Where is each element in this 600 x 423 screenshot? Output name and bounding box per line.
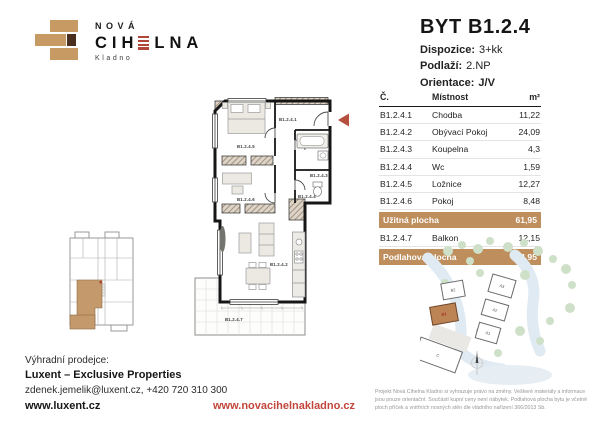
flyer-page: NOVÁ CIHLNA Kladno BYT B1.2.4 Dispozice:… (0, 0, 600, 423)
building-a2: A2 (481, 299, 508, 321)
disclaimer-text: Projekt Nová Cihelna Kladno si vyhrazuje… (375, 388, 593, 413)
table-row: B1.2.4.2Obývací Pokoj24,09 (379, 124, 541, 141)
building-b2: B2 (441, 280, 465, 300)
building-b1-highlighted: B1 (430, 303, 459, 325)
label-balkon: B1.2.4.7 (225, 317, 243, 322)
label-loznice: B1.2.4.5 (237, 144, 255, 149)
logo: NOVÁ CIHLNA Kladno (35, 20, 235, 70)
kitchen (293, 232, 306, 297)
logo-text: NOVÁ CIHLNA Kladno (95, 21, 203, 62)
usable-area-row: Užitná plocha61,95 (379, 212, 541, 229)
seller-label: Výhradní prodejce: (25, 355, 109, 366)
spec-dispozice: Dispozice:3+kk (420, 44, 530, 56)
label-pokoj: B1.2.4.6 (237, 197, 255, 202)
seller-contact: zdenek.jemelik@luxent.cz, +420 720 310 3… (25, 385, 227, 396)
label-koupelna: B1.2.4.3 (310, 173, 328, 178)
logo-city: Kladno (95, 55, 203, 62)
floorplate-schematic (55, 222, 155, 347)
table-header: Č. Místnost m² (379, 90, 541, 107)
building-a1: A1 (475, 322, 501, 343)
logo-nova: NOVÁ (95, 21, 203, 31)
seller-name: Luxent – Exclusive Properties (25, 369, 182, 381)
seller-website: www.luxent.cz (25, 400, 100, 412)
building-a3: A3 (488, 274, 516, 298)
table-row: B1.2.4.5Ložnice12,27 (379, 176, 541, 193)
label-obyvaci-pokoj: B1.2.4.2 (270, 262, 288, 267)
logo-cihelna: CIHLNA (95, 34, 203, 53)
site-plan: B2 B1 A3 A2 A1 C (420, 233, 595, 393)
label-wc: B1.2.4.4 (298, 194, 316, 199)
project-website: www.novacihelnakladno.cz (213, 400, 355, 412)
unit-title: BYT B1.2.4 (420, 16, 530, 39)
brick-e-icon (138, 36, 149, 52)
table-row: B1.2.4.4Wc1,59 (379, 159, 541, 176)
spec-orientace: Orientace:J/V (420, 77, 530, 89)
table-row: B1.2.4.6Pokoj8,48 (379, 193, 541, 210)
entrance-arrow-icon (338, 114, 349, 127)
label-chodba: B1.2.4.1 (279, 117, 297, 122)
unit-header: BYT B1.2.4 Dispozice:3+kk Podlaží:2.NP O… (420, 16, 530, 89)
spec-podlazi: Podlaží:2.NP (420, 60, 530, 72)
floorplan: B1.2.4.1 B1.2.4.5 B1.2.4.3 B1.2.4.4 B1.2… (175, 90, 375, 355)
table-row: B1.2.4.3Koupelna4,3 (379, 141, 541, 158)
table-row: B1.2.4.1Chodba11,22 (379, 107, 541, 124)
